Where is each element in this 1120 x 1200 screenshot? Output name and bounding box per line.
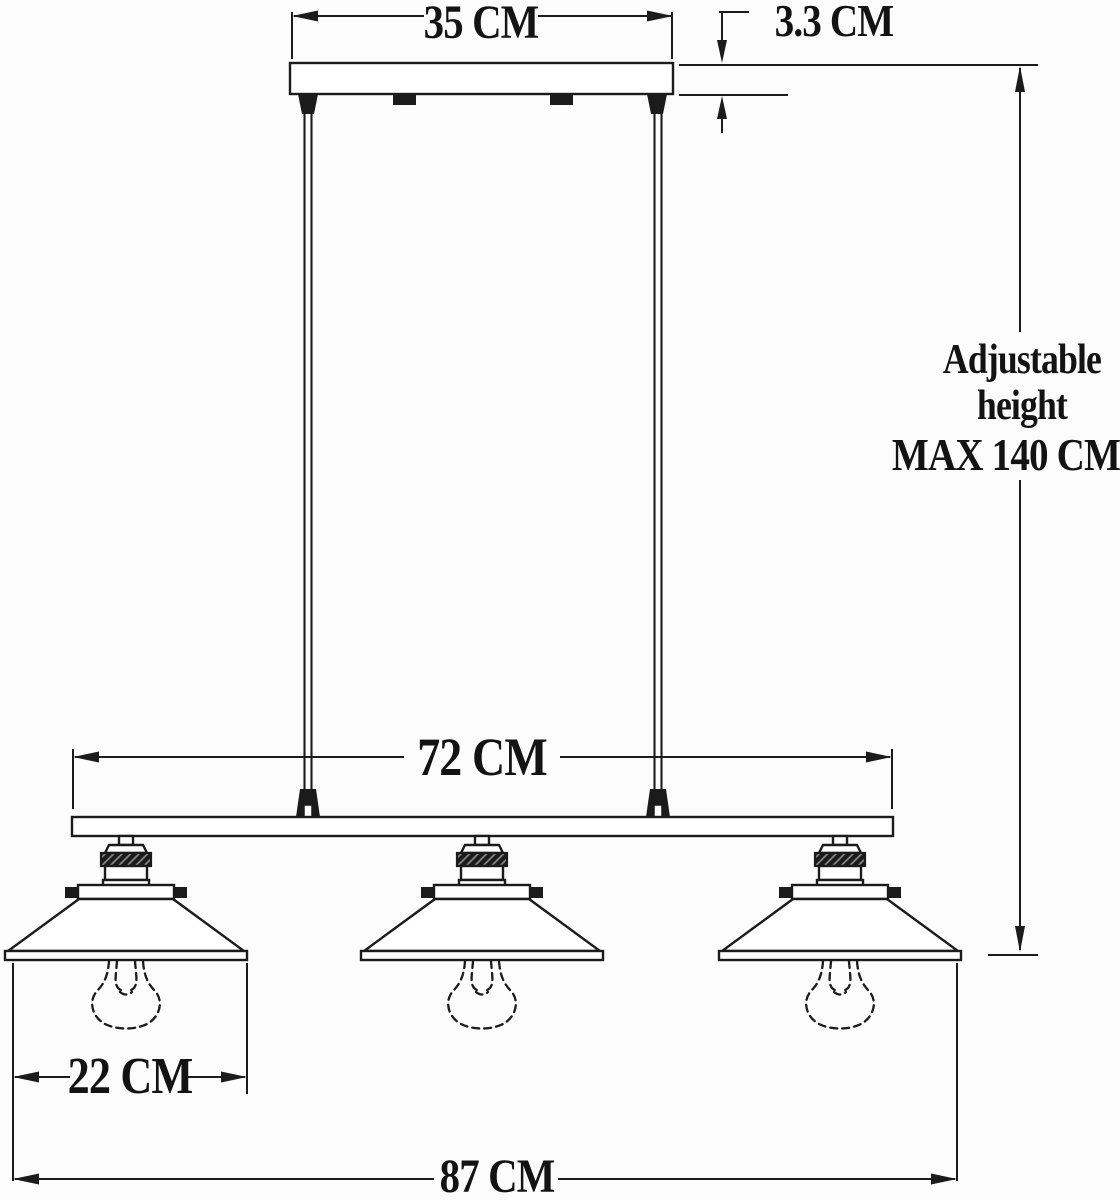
suspension-cable-right xyxy=(646,114,670,817)
lamp-left xyxy=(5,836,247,1029)
canopy-thickness-label: 3.3 CM xyxy=(775,0,894,44)
bar-span-label: 72 CM xyxy=(417,730,547,784)
lamp-middle xyxy=(361,836,603,1029)
mounting-tab-right xyxy=(550,94,573,105)
canopy-width-label: 35 CM xyxy=(424,0,539,47)
ceiling-canopy xyxy=(290,63,673,114)
pendant-lamp-dimension-diagram: 35 CM 3.3 CM Adjustable height MAX 140 C… xyxy=(0,0,1120,1200)
dimension-3-3cm xyxy=(679,12,788,133)
shade-width-label: 22 CM xyxy=(68,1051,193,1103)
lamp-right xyxy=(719,836,961,1029)
mounting-tab-left xyxy=(393,94,416,105)
cable-grip-left xyxy=(298,94,318,114)
suspension-cable-left xyxy=(296,114,320,817)
cable-grip-right xyxy=(647,94,667,114)
line-art-canvas xyxy=(0,0,1120,1200)
max-height-label: MAX 140 CM xyxy=(892,432,1120,478)
lamp-bar xyxy=(72,817,893,836)
overall-width-label: 87 CM xyxy=(440,1153,555,1200)
adjustable-height-label: Adjustable height xyxy=(903,337,1120,429)
